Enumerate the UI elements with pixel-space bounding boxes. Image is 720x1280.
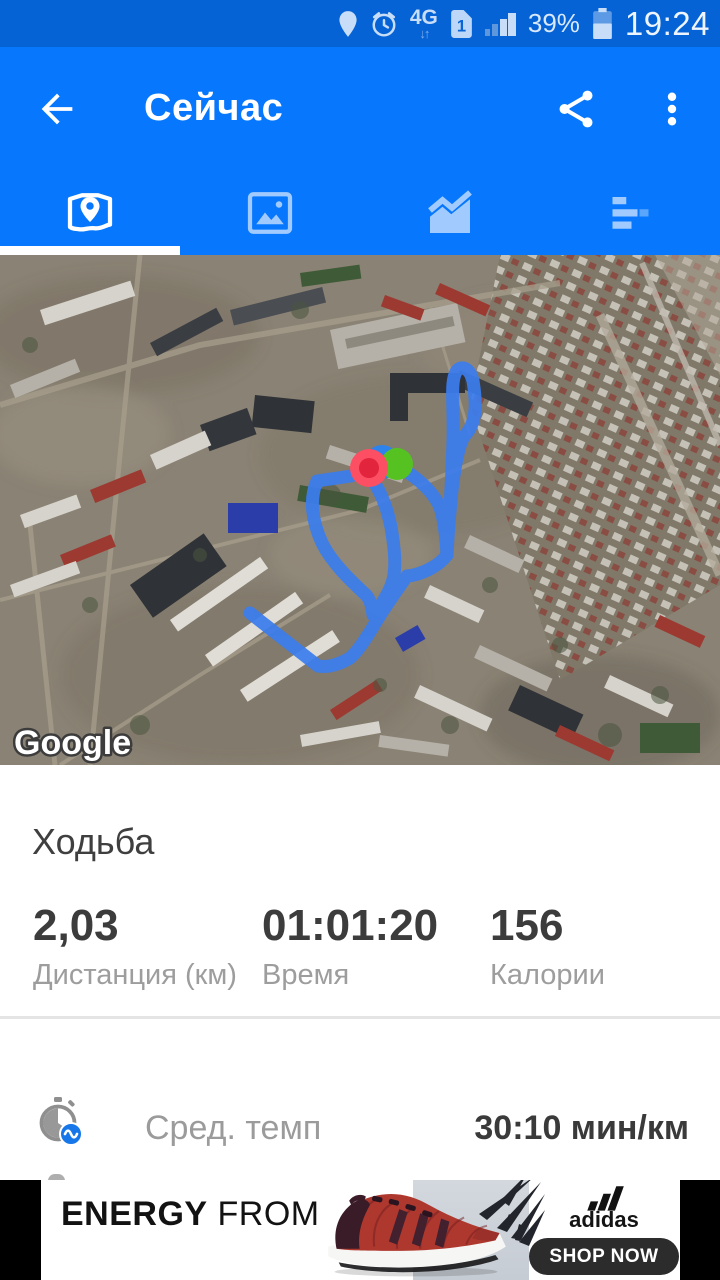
sim-card-icon: 1 [450, 9, 473, 38]
data-arrows-icon: ↓↑ [419, 27, 428, 40]
map-view[interactable]: Google [0, 255, 720, 765]
tab-bar [0, 170, 720, 255]
stat-duration: 01:01:20 Время [262, 901, 438, 992]
sneaker-image [307, 1184, 525, 1278]
phone-screen: 4G ↓↑ 1 39% 19:24 Сейчас [0, 0, 720, 1280]
network-type-indicator: 4G ↓↑ [410, 7, 438, 40]
share-button[interactable] [550, 83, 602, 135]
calories-label: Калории [490, 959, 605, 992]
app-bar: Сейчас [0, 47, 720, 170]
avg-pace-icon [34, 1095, 84, 1147]
overflow-menu-icon [651, 88, 693, 130]
back-arrow-icon[interactable] [34, 86, 80, 132]
tab-map[interactable] [0, 170, 180, 255]
photos-tab-icon [240, 183, 300, 243]
tab-photos[interactable] [180, 170, 360, 255]
ad-banner[interactable]: ENERGY FROM THE GROUND UP [0, 1180, 720, 1280]
tab-list[interactable] [540, 170, 720, 255]
stat-calories: 156 Калории [490, 901, 605, 992]
activity-type-label: Ходьба [32, 821, 154, 863]
chart-tab-icon [420, 183, 480, 243]
status-bar: 4G ↓↑ 1 39% 19:24 [0, 0, 720, 47]
avg-pace-value: 30:10 мин/км [474, 1109, 689, 1148]
distance-value: 2,03 [33, 901, 237, 951]
shop-now-button[interactable]: SHOP NOW [529, 1238, 678, 1275]
alarm-icon [370, 10, 398, 38]
battery-percent: 39% [528, 8, 580, 39]
adidas-wordmark: adidas [569, 1209, 639, 1231]
list-tab-icon [600, 183, 660, 243]
distance-label: Дистанция (км) [33, 959, 237, 992]
svg-text:1: 1 [457, 16, 466, 35]
battery-icon [592, 8, 613, 39]
avg-pace-label: Сред. темп [145, 1109, 321, 1148]
location-pin-icon [338, 10, 358, 38]
overflow-menu-button[interactable] [646, 83, 698, 135]
current-position-marker-core [359, 458, 379, 478]
duration-value: 01:01:20 [262, 901, 438, 951]
map-tab-icon [60, 183, 120, 243]
clock: 19:24 [625, 5, 710, 43]
tab-chart[interactable] [360, 170, 540, 255]
google-attribution: Google [14, 724, 131, 762]
duration-label: Время [262, 959, 438, 992]
calories-value: 156 [490, 901, 605, 951]
activity-summary-panel: Ходьба 2,03 Дистанция (км) 01:01:20 Врем… [0, 765, 720, 1180]
section-divider [0, 1016, 720, 1019]
page-title: Сейчас [144, 87, 283, 130]
ad-creative[interactable]: ENERGY FROM THE GROUND UP [41, 1180, 680, 1280]
share-icon [553, 86, 599, 132]
signal-strength-icon [485, 12, 516, 36]
active-tab-indicator [0, 246, 180, 255]
stat-distance: 2,03 Дистанция (км) [33, 901, 237, 992]
ad-brand-block: adidas SHOP NOW [528, 1180, 680, 1280]
